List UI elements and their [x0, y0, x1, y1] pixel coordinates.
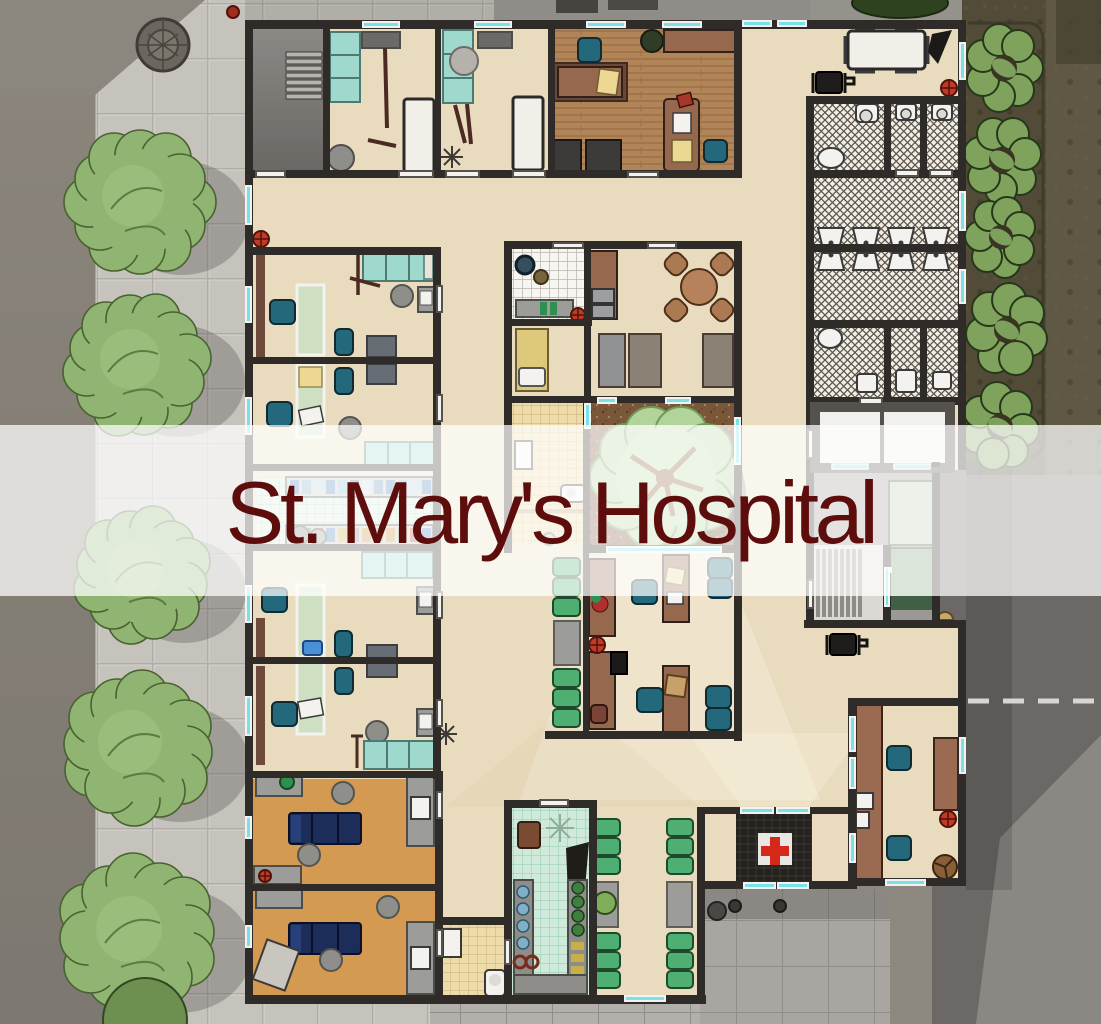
svg-text:St. Mary's Hospital: St. Mary's Hospital [225, 463, 874, 562]
